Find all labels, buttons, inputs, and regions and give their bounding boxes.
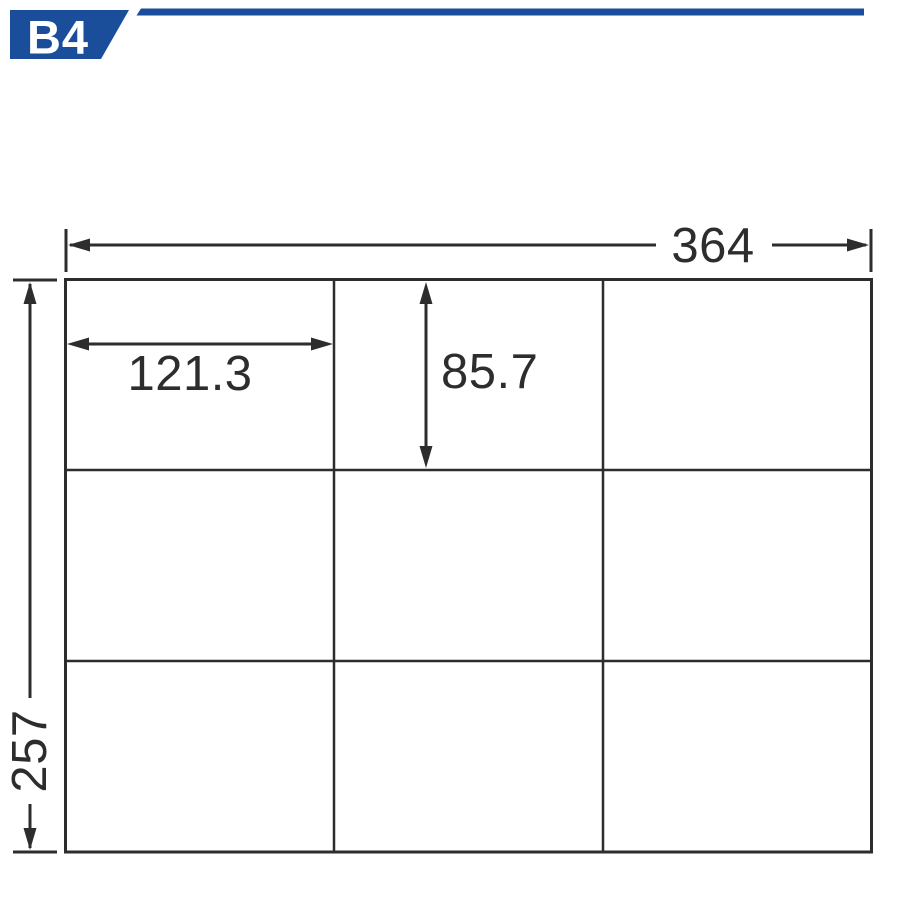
label-layout-diagram: B4	[0, 0, 900, 900]
arrowhead-up-icon	[420, 282, 433, 304]
cell-height-value: 85.7	[441, 345, 538, 399]
arrowhead-right-icon	[847, 239, 869, 252]
arrowhead-down-icon	[420, 446, 433, 468]
cell-width-value: 121.3	[127, 347, 252, 401]
dimension-labels: 364 257 121.3 85.7	[3, 219, 755, 793]
arrowhead-down-icon	[24, 828, 37, 850]
label-sheet-spec-page: B4	[0, 0, 900, 900]
paper-size-badge-label: B4	[27, 11, 89, 64]
dimension-lines	[13, 229, 871, 852]
arrowhead-right-icon	[311, 338, 333, 351]
total-width-value: 364	[671, 219, 754, 273]
total-height-value: 257	[3, 709, 57, 792]
header-rule	[137, 9, 865, 16]
arrowhead-left-icon	[68, 239, 90, 252]
header: B4	[10, 9, 864, 64]
dimension-arrowheads	[24, 239, 870, 851]
arrowhead-up-icon	[24, 282, 37, 304]
arrowhead-left-icon	[67, 338, 89, 351]
